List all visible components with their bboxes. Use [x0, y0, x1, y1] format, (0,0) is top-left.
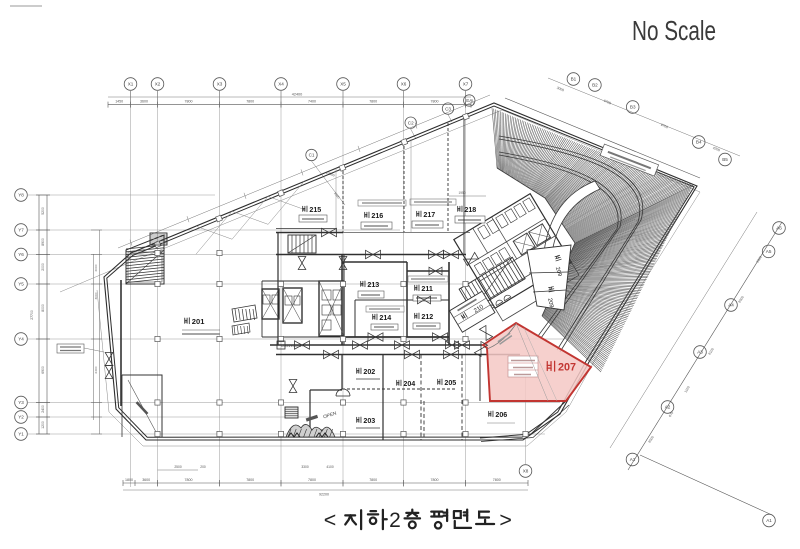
svg-text:Y4: Y4 — [18, 337, 24, 342]
svg-text:216: 216 — [371, 212, 383, 220]
svg-text:X5: X5 — [340, 82, 346, 87]
svg-text:C1: C1 — [309, 153, 315, 158]
svg-text:204: 204 — [403, 380, 415, 388]
svg-text:B4: B4 — [696, 140, 702, 145]
svg-text:202: 202 — [363, 368, 375, 376]
svg-text:No Scale: No Scale — [632, 15, 716, 46]
svg-text:215: 215 — [309, 206, 321, 214]
svg-text:EA: EA — [466, 98, 473, 103]
svg-text:X4: X4 — [278, 82, 284, 87]
svg-text:7800: 7800 — [431, 99, 439, 103]
svg-text:CONVENIENT: CONVENIENT — [281, 344, 303, 348]
svg-text:3600: 3600 — [142, 478, 150, 482]
svg-text:A6: A6 — [776, 226, 782, 231]
svg-text:X3: X3 — [217, 82, 223, 87]
svg-text:1200: 1200 — [41, 421, 45, 429]
svg-text:3600: 3600 — [140, 99, 148, 103]
svg-text:217: 217 — [423, 211, 435, 219]
svg-text:B2: B2 — [592, 83, 598, 88]
svg-text:A2: A2 — [665, 405, 671, 410]
svg-text:Y7: Y7 — [18, 228, 24, 233]
svg-text:2500: 2500 — [174, 465, 182, 469]
svg-text:1800: 1800 — [125, 478, 133, 482]
svg-text:C2: C2 — [408, 120, 414, 125]
svg-text:207: 207 — [558, 362, 576, 374]
svg-text:A3: A3 — [697, 350, 703, 355]
svg-text:C3: C3 — [445, 106, 451, 111]
svg-text:7800: 7800 — [369, 478, 377, 482]
svg-text:7800: 7800 — [246, 99, 254, 103]
svg-text:Y3: Y3 — [18, 400, 24, 405]
svg-text:203: 203 — [363, 417, 375, 425]
svg-text:A4: A4 — [728, 303, 734, 308]
svg-text:212: 212 — [421, 313, 433, 321]
svg-text:X2: X2 — [155, 82, 161, 87]
svg-text:7800: 7800 — [308, 478, 316, 482]
svg-text:Y2: Y2 — [18, 415, 24, 420]
svg-text:213: 213 — [367, 281, 379, 289]
svg-text:92200: 92200 — [319, 493, 329, 497]
svg-text:6400: 6400 — [94, 366, 98, 373]
svg-text:B5: B5 — [722, 157, 728, 162]
svg-text:206: 206 — [495, 411, 507, 419]
svg-text:201: 201 — [192, 317, 205, 326]
svg-text:2000: 2000 — [41, 263, 45, 271]
svg-text:27700: 27700 — [30, 310, 34, 320]
svg-text:A1: A1 — [630, 457, 636, 462]
svg-text:2000: 2000 — [94, 264, 98, 271]
svg-text:Y5: Y5 — [18, 282, 24, 287]
svg-text:7800: 7800 — [369, 99, 377, 103]
svg-text:211: 211 — [421, 285, 433, 293]
svg-text:X6: X6 — [401, 82, 407, 87]
svg-text:>: > — [499, 508, 512, 532]
svg-text:7800: 7800 — [246, 478, 254, 482]
svg-text:2: 2 — [389, 509, 401, 532]
svg-text:214: 214 — [379, 314, 391, 322]
svg-text:200: 200 — [200, 465, 206, 469]
svg-text:218: 218 — [464, 206, 476, 214]
svg-text:7800: 7800 — [185, 478, 193, 482]
svg-text:B3: B3 — [630, 105, 636, 110]
svg-text:8900: 8900 — [41, 238, 45, 246]
svg-text:5200: 5200 — [41, 207, 45, 215]
svg-text:7800: 7800 — [431, 478, 439, 482]
svg-text:8000: 8000 — [41, 304, 45, 312]
svg-text:42400: 42400 — [292, 93, 303, 97]
svg-text:X1: X1 — [128, 82, 134, 87]
svg-text:Y8: Y8 — [18, 193, 24, 198]
svg-text:1950: 1950 — [458, 191, 465, 195]
svg-text:205: 205 — [444, 379, 456, 387]
svg-text:7400: 7400 — [308, 99, 316, 103]
svg-text:A5: A5 — [766, 249, 772, 254]
svg-text:Y6: Y6 — [18, 252, 24, 257]
svg-text:X7: X7 — [463, 82, 469, 87]
svg-text:7800: 7800 — [493, 478, 501, 482]
svg-text:<: < — [324, 508, 337, 532]
svg-text:1450: 1450 — [115, 99, 123, 103]
svg-text:Y1: Y1 — [18, 432, 24, 437]
svg-text:4100: 4100 — [326, 465, 334, 469]
svg-text:6900: 6900 — [41, 366, 45, 374]
svg-text:X8: X8 — [523, 469, 529, 474]
svg-text:A1: A1 — [766, 518, 772, 523]
svg-text:7800: 7800 — [185, 99, 193, 103]
svg-text:3300: 3300 — [301, 465, 309, 469]
svg-text:B1: B1 — [571, 77, 577, 82]
svg-text:2400: 2400 — [41, 405, 45, 413]
